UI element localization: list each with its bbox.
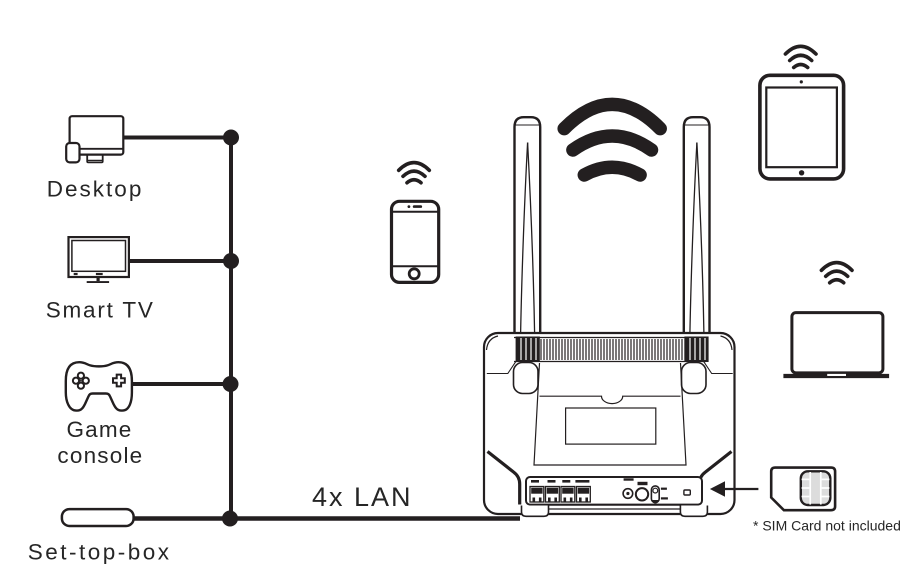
svg-text:Desktop: Desktop [47, 176, 144, 201]
svg-text:* SIM Card not included: * SIM Card not included [753, 518, 901, 534]
svg-text:Game: Game [66, 417, 132, 442]
svg-text:4x LAN: 4x LAN [312, 482, 413, 512]
svg-text:Smart TV: Smart TV [46, 297, 155, 322]
svg-text:Set-top-box: Set-top-box [28, 540, 172, 565]
svg-text:console: console [57, 443, 143, 468]
